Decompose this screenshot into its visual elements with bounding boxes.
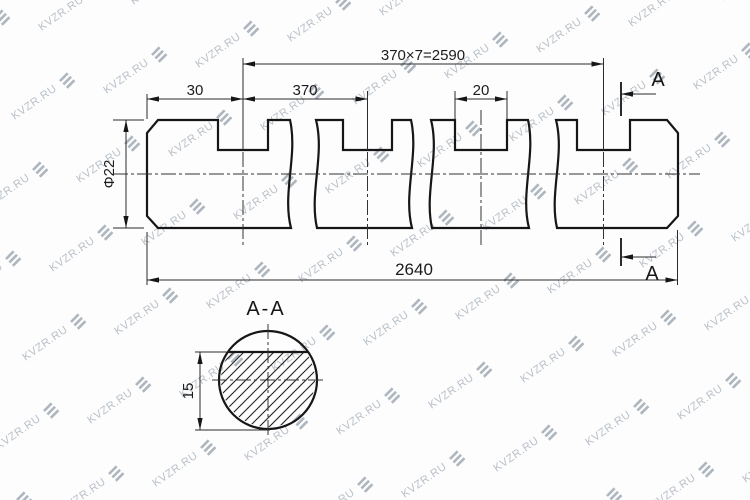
kvzr-logo-icon [320, 325, 334, 339]
kvzr-logo-icon [244, 21, 258, 35]
kvzr-logo-icon [661, 310, 675, 324]
watermark-text: KVZR.RU [545, 257, 595, 297]
watermark-text: KVZR.RU [453, 283, 503, 323]
kvzr-logo-icon [71, 314, 85, 328]
section-view: A-A 15 [150, 298, 374, 438]
technical-drawing-page: KVZR.RUKVZR.RUKVZR.RUKVZR.RUKVZR.RUKVZR.… [0, 0, 750, 500]
kvzr-logo-icon [152, 47, 166, 61]
kvzr-logo-icon [558, 95, 572, 109]
watermark-text: KVZR.RU [534, 16, 584, 56]
section-title: A-A [246, 298, 285, 320]
kvzr-logo-icon [0, 10, 9, 24]
kvzr-logo-icon [634, 399, 648, 413]
watermark-text: KVZR.RU [691, 53, 741, 93]
watermark-text: KVZR.RU [0, 413, 43, 453]
watermark-text: KVZR.RU [150, 450, 200, 490]
kvzr-logo-icon [190, 199, 204, 213]
kvzr-logo-icon [726, 373, 740, 387]
kvzr-logo-icon [531, 184, 545, 198]
watermark-text: KVZR.RU [599, 79, 649, 119]
kvzr-logo-icon [336, 0, 350, 10]
dim-pitch-total: 370×7=2590 [243, 47, 604, 67]
watermark-text: KVZR.RU [112, 298, 162, 338]
watermark-text: KVZR.RU [231, 183, 281, 223]
watermark-text: KVZR.RU [377, 0, 427, 19]
kvzr-logo-icon [742, 43, 750, 57]
kvzr-logo-icon [412, 299, 426, 313]
watermark-text: KVZR.RU [128, 0, 178, 8]
kvzr-logo-icon [450, 451, 464, 465]
kvzr-logo-icon [504, 273, 518, 287]
kvzr-logo-icon [136, 377, 150, 391]
kvzr-logo-icon [493, 32, 507, 46]
kvzr-logo-icon [163, 288, 177, 302]
kvzr-logo-icon [542, 425, 556, 439]
dim-flat-height-label: 15 [180, 383, 197, 400]
kvzr-logo-icon [569, 336, 583, 350]
watermark-text: KVZR.RU [258, 94, 308, 134]
watermark-text: KVZR.RU [58, 476, 108, 500]
dim-slot-width-label: 20 [473, 82, 490, 99]
kvzr-logo-icon [44, 403, 58, 417]
watermark-text: KVZR.RU [47, 235, 97, 275]
watermark-text: KVZR.RU [36, 0, 86, 34]
watermark-text: KVZR.RU [350, 68, 400, 108]
watermark-text: KVZR.RU [0, 261, 5, 301]
watermark-text: KVZR.RU [729, 205, 750, 245]
watermark-text: KVZR.RU [323, 157, 373, 197]
kvzr-logo-icon [385, 388, 399, 402]
watermark-text: KVZR.RU [85, 387, 135, 427]
dim-slot-width: 20 [455, 82, 507, 102]
kvzr-logo-icon [607, 488, 621, 500]
dim-end-offset: 30 [147, 82, 243, 102]
kvzr-logo-icon [439, 210, 453, 224]
dim-pitch-label: 370 [292, 82, 317, 99]
kvzr-logo-icon [466, 121, 480, 135]
dim-diameter-label: Φ22 [101, 160, 118, 189]
watermark-text: KVZR.RU [610, 320, 660, 360]
section-label-top: A [651, 69, 665, 91]
watermark-text: KVZR.RU [285, 5, 335, 45]
kvzr-logo-icon [688, 221, 702, 235]
kvzr-logo-icon [715, 132, 729, 146]
watermark-text: KVZR.RU [166, 120, 216, 160]
watermark-layer: KVZR.RUKVZR.RUKVZR.RUKVZR.RUKVZR.RUKVZR.… [0, 0, 750, 500]
watermark-text: KVZR.RU [334, 398, 384, 438]
watermark-text: KVZR.RU [399, 461, 449, 500]
kvzr-logo-icon [217, 110, 231, 124]
dim-pitch-total-label: 370×7=2590 [381, 47, 465, 64]
watermark-text: KVZR.RU [491, 435, 541, 475]
dim-overall-length: 2640 [147, 260, 678, 283]
kvzr-logo-icon [255, 262, 269, 276]
watermark-text: KVZR.RU [193, 31, 243, 71]
kvzr-logo-icon [347, 236, 361, 250]
watermark-text: KVZR.RU [675, 383, 725, 423]
kvzr-logo-icon [125, 136, 139, 150]
watermark-text: KVZR.RU [361, 309, 411, 349]
dim-end-offset-label: 30 [187, 82, 204, 99]
watermark-text: KVZR.RU [740, 446, 750, 486]
kvzr-logo-icon [98, 225, 112, 239]
watermark-text: KVZR.RU [518, 346, 568, 386]
watermark-text: KVZR.RU [507, 105, 557, 145]
kvzr-logo-icon [201, 440, 215, 454]
watermark-text: KVZR.RU [307, 487, 357, 500]
kvzr-logo-icon [109, 466, 123, 480]
watermark-text: KVZR.RU [648, 472, 698, 500]
dim-overall-length-label: 2640 [395, 260, 433, 279]
watermark-text: KVZR.RU [626, 0, 676, 30]
section-label-bottom: A [645, 263, 659, 285]
shaft-drawing-canvas: KVZR.RUKVZR.RUKVZR.RUKVZR.RUKVZR.RUKVZR.… [0, 0, 750, 500]
kvzr-logo-icon [596, 247, 610, 261]
kvzr-logo-icon [17, 492, 31, 500]
watermark-text: KVZR.RU [718, 0, 750, 4]
watermark-text: KVZR.RU [702, 294, 750, 334]
watermark-text: KVZR.RU [9, 83, 59, 123]
kvzr-logo-icon [477, 362, 491, 376]
watermark-text: KVZR.RU [0, 172, 32, 212]
kvzr-logo-icon [228, 351, 242, 365]
kvzr-logo-icon [699, 462, 713, 476]
watermark-text: KVZR.RU [101, 57, 151, 97]
watermark-text: KVZR.RU [20, 324, 70, 364]
kvzr-logo-icon [33, 162, 47, 176]
kvzr-logo-icon [60, 73, 74, 87]
watermark-text: KVZR.RU [583, 409, 633, 449]
kvzr-logo-icon [6, 251, 20, 265]
kvzr-logo-icon [358, 477, 372, 491]
watermark-text: KVZR.RU [664, 142, 714, 182]
kvzr-logo-icon [623, 158, 637, 172]
kvzr-logo-icon [585, 6, 599, 20]
dim-pitch: 370 [243, 82, 368, 102]
watermark-text: KVZR.RU [426, 372, 476, 412]
